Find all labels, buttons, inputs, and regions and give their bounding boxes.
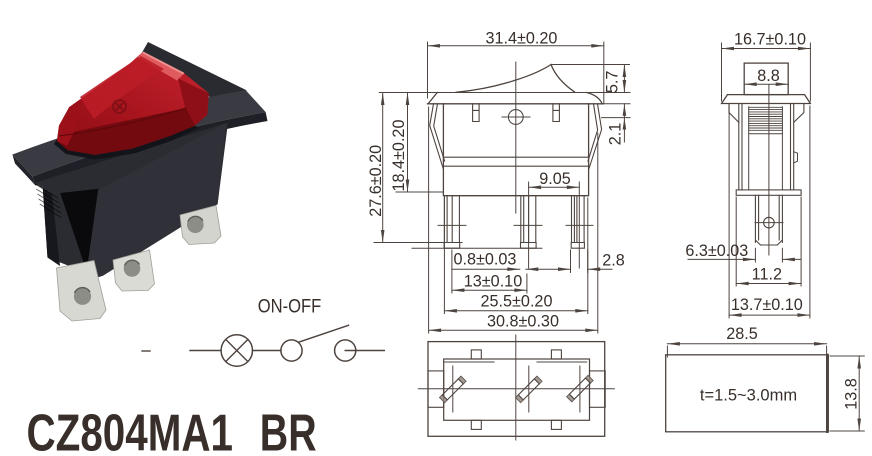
svg-text:2.8: 2.8 bbox=[602, 252, 625, 270]
svg-text:31.4±0.20: 31.4±0.20 bbox=[485, 30, 557, 48]
svg-text:ON-OFF: ON-OFF bbox=[258, 297, 322, 318]
svg-text:2.1: 2.1 bbox=[607, 123, 625, 146]
svg-text:16.7±0.10: 16.7±0.10 bbox=[734, 31, 806, 49]
svg-text:18.4±0.20: 18.4±0.20 bbox=[390, 120, 408, 192]
svg-text:11.2: 11.2 bbox=[752, 266, 782, 284]
svg-text:27.6±0.20: 27.6±0.20 bbox=[367, 145, 385, 217]
svg-text:5.7: 5.7 bbox=[604, 71, 622, 94]
svg-text:28.5: 28.5 bbox=[726, 325, 758, 343]
svg-text:13±0.10: 13±0.10 bbox=[464, 273, 522, 291]
svg-text:9.05: 9.05 bbox=[539, 170, 571, 188]
svg-text:25.5±0.20: 25.5±0.20 bbox=[481, 293, 553, 311]
svg-text:30.8±0.30: 30.8±0.30 bbox=[487, 313, 559, 331]
svg-text:6.3±0.03: 6.3±0.03 bbox=[685, 242, 748, 260]
svg-text:13.8: 13.8 bbox=[843, 378, 861, 410]
svg-text:BR: BR bbox=[260, 403, 317, 456]
svg-text:CZ804MA1: CZ804MA1 bbox=[27, 403, 234, 456]
svg-text:8.8: 8.8 bbox=[757, 67, 780, 85]
svg-text:0.8±0.03: 0.8±0.03 bbox=[454, 251, 517, 269]
svg-text:13.7±0.10: 13.7±0.10 bbox=[731, 296, 803, 314]
svg-text:t=1.5~3.0mm: t=1.5~3.0mm bbox=[700, 387, 797, 405]
